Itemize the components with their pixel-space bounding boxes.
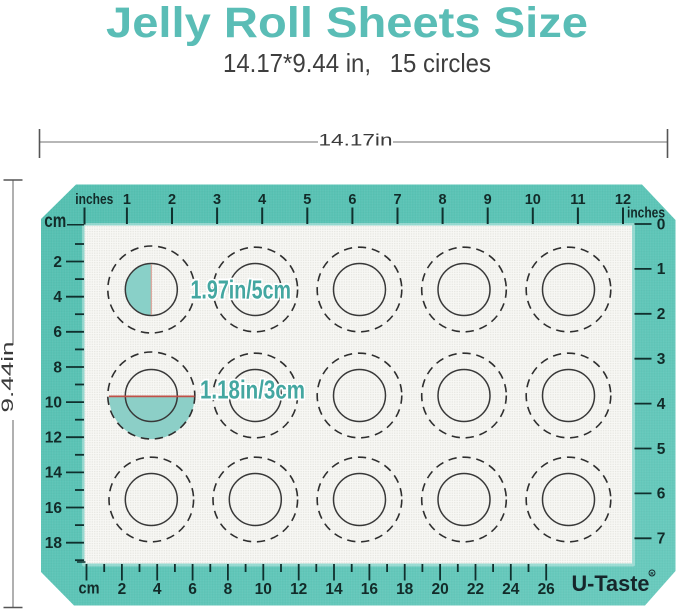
svg-text:3: 3 (657, 351, 666, 368)
svg-text:0: 0 (657, 216, 666, 233)
svg-text:6: 6 (348, 192, 356, 208)
svg-text:14: 14 (325, 581, 343, 598)
svg-text:4: 4 (657, 396, 666, 413)
svg-text:12: 12 (290, 581, 307, 598)
svg-text:7: 7 (393, 192, 401, 208)
svg-text:16: 16 (361, 581, 379, 598)
svg-text:14.17*9.44 in, 15 circles: 14.17*9.44 in, 15 circles (223, 48, 491, 78)
svg-text:18: 18 (396, 581, 414, 598)
svg-text:4: 4 (53, 289, 62, 306)
svg-text:1.97in/5cm: 1.97in/5cm (191, 275, 292, 305)
svg-text:5: 5 (303, 192, 311, 208)
svg-text:9.44in: 9.44in (0, 342, 17, 413)
svg-text:6: 6 (188, 581, 197, 598)
svg-text:8: 8 (224, 581, 233, 598)
svg-text:16: 16 (45, 500, 63, 517)
svg-text:18: 18 (45, 535, 63, 552)
svg-text:2: 2 (657, 306, 666, 323)
svg-text:26: 26 (538, 581, 556, 598)
svg-text:2: 2 (53, 254, 62, 271)
svg-text:inches: inches (75, 191, 113, 208)
svg-text:4: 4 (258, 192, 266, 208)
svg-text:24: 24 (502, 581, 520, 598)
svg-text:1: 1 (123, 192, 131, 208)
svg-text:8: 8 (53, 359, 62, 376)
svg-text:6: 6 (53, 324, 62, 341)
svg-text:14.17in: 14.17in (319, 132, 393, 150)
svg-text:8: 8 (439, 192, 447, 208)
svg-text:cm: cm (79, 579, 100, 598)
svg-text:2: 2 (168, 192, 176, 208)
svg-text:U-Taste: U-Taste (572, 571, 650, 596)
svg-text:2: 2 (118, 581, 127, 598)
svg-text:9: 9 (484, 192, 492, 208)
svg-text:1.18in/3cm: 1.18in/3cm (200, 375, 305, 405)
svg-text:7: 7 (657, 531, 666, 548)
svg-text:cm: cm (44, 211, 66, 232)
svg-text:20: 20 (431, 581, 448, 598)
svg-text:22: 22 (467, 581, 484, 598)
svg-text:Jelly Roll Sheets Size: Jelly Roll Sheets Size (106, 0, 588, 47)
svg-text:3: 3 (213, 192, 221, 208)
svg-text:14: 14 (45, 465, 63, 482)
svg-text:10: 10 (525, 192, 541, 208)
svg-text:4: 4 (153, 581, 162, 598)
svg-text:5: 5 (657, 441, 666, 458)
svg-text:10: 10 (45, 394, 62, 411)
svg-text:12: 12 (45, 430, 62, 447)
svg-text:1: 1 (657, 261, 666, 278)
svg-text:11: 11 (570, 192, 585, 208)
svg-text:10: 10 (255, 581, 272, 598)
svg-text:6: 6 (657, 486, 666, 503)
